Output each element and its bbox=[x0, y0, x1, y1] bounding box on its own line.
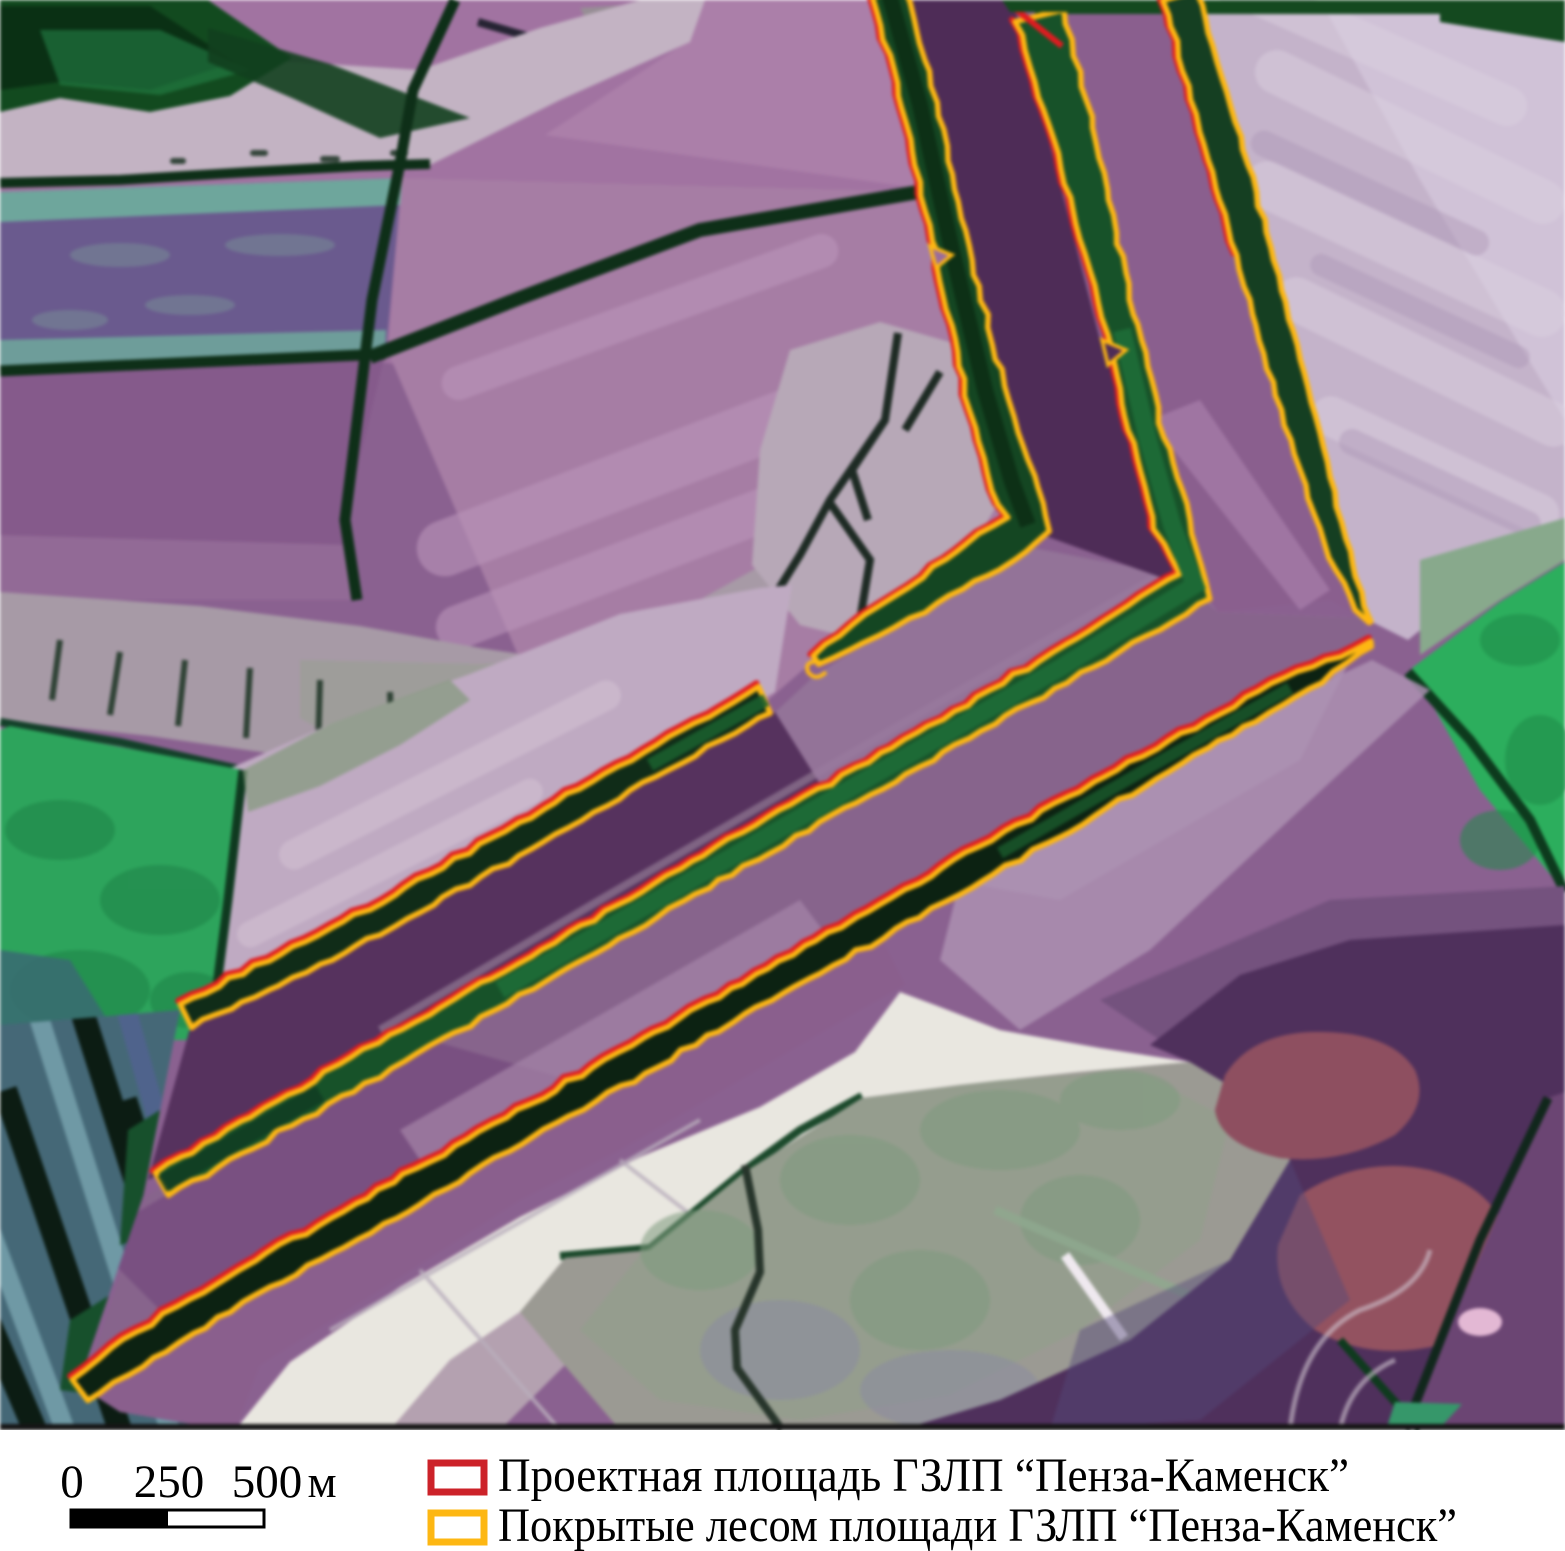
svg-text:250: 250 bbox=[134, 1456, 205, 1508]
svg-text:м: м bbox=[307, 1456, 336, 1507]
svg-text:0: 0 bbox=[60, 1456, 84, 1508]
svg-text:Проектная площадь ГЗЛП “Пенза-: Проектная площадь ГЗЛП “Пенза-Каменск” bbox=[498, 1449, 1349, 1502]
svg-text:500: 500 bbox=[232, 1456, 303, 1508]
svg-text:Покрытые лесом площади ГЗЛП “П: Покрытые лесом площади ГЗЛП “Пенза-Камен… bbox=[498, 1499, 1457, 1551]
